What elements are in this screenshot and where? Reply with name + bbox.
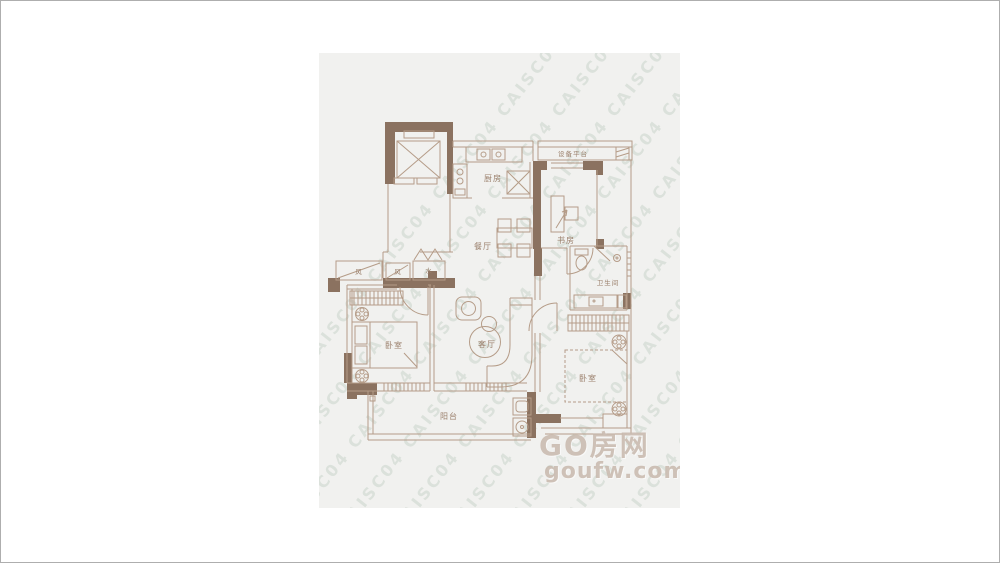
label-kitchen: 厨房 <box>484 173 502 183</box>
label-study: 书房 <box>557 235 575 245</box>
label-bedroom-right: 卧室 <box>579 373 597 383</box>
label-dining: 餐厅 <box>474 242 492 251</box>
label-bathroom: 卫生间 <box>597 278 620 287</box>
label-balcony: 阳台 <box>440 411 458 421</box>
floorplan-image: CAISC04 CAISC04 CAISC04 CAISC04 CAISC04 … <box>319 53 680 508</box>
label-riser-water: 水 <box>425 266 433 275</box>
label-living: 客厅 <box>478 339 496 349</box>
label-bedroom-left: 卧室 <box>385 340 403 350</box>
label-riser-wind-2: 风 <box>394 268 402 276</box>
label-riser-wind-1: 风 <box>355 268 363 276</box>
site-logo: GO房网 goufw.com <box>539 431 680 483</box>
label-equipment-platform: 设备平台 <box>558 149 588 158</box>
plant-icons <box>356 308 627 417</box>
site-logo-title: GO房网 <box>539 431 680 460</box>
site-logo-domain: goufw.com <box>544 460 680 483</box>
